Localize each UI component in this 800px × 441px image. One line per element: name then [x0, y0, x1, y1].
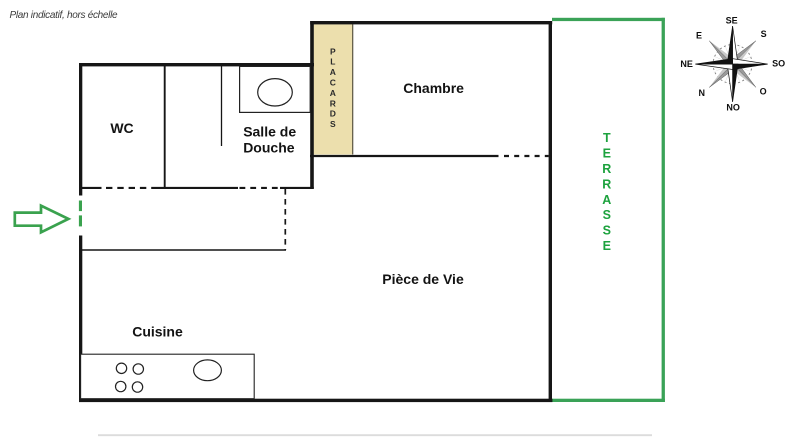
svg-text:S: S — [330, 119, 336, 129]
svg-text:Cuisine: Cuisine — [132, 324, 183, 340]
svg-text:A: A — [602, 193, 611, 207]
svg-text:SE: SE — [726, 16, 738, 26]
svg-text:WC: WC — [110, 120, 133, 136]
svg-text:R: R — [602, 162, 611, 176]
svg-text:E: E — [603, 147, 611, 161]
svg-text:P: P — [330, 46, 336, 56]
svg-text:Salle de: Salle de — [243, 124, 296, 140]
svg-text:Pièce de Vie: Pièce de Vie — [382, 271, 464, 287]
svg-text:S: S — [603, 208, 611, 222]
svg-text:SO: SO — [772, 59, 785, 69]
svg-text:C: C — [330, 78, 336, 88]
svg-text:NO: NO — [726, 103, 740, 113]
svg-text:Chambre: Chambre — [403, 80, 464, 96]
svg-text:A: A — [330, 88, 336, 98]
svg-text:S: S — [603, 224, 611, 238]
svg-text:S: S — [761, 29, 767, 39]
svg-text:L: L — [330, 57, 335, 67]
svg-text:N: N — [698, 88, 705, 98]
svg-text:Douche: Douche — [243, 140, 295, 156]
svg-text:D: D — [330, 109, 336, 119]
svg-text:Plan indicatif, hors échelle: Plan indicatif, hors échelle — [10, 10, 119, 21]
svg-text:E: E — [603, 239, 611, 253]
svg-text:E: E — [696, 30, 702, 40]
svg-text:T: T — [603, 131, 611, 145]
svg-text:R: R — [602, 177, 611, 191]
svg-text:R: R — [330, 98, 336, 108]
svg-text:O: O — [760, 86, 767, 96]
svg-text:NE: NE — [680, 59, 693, 69]
svg-text:A: A — [330, 67, 336, 77]
